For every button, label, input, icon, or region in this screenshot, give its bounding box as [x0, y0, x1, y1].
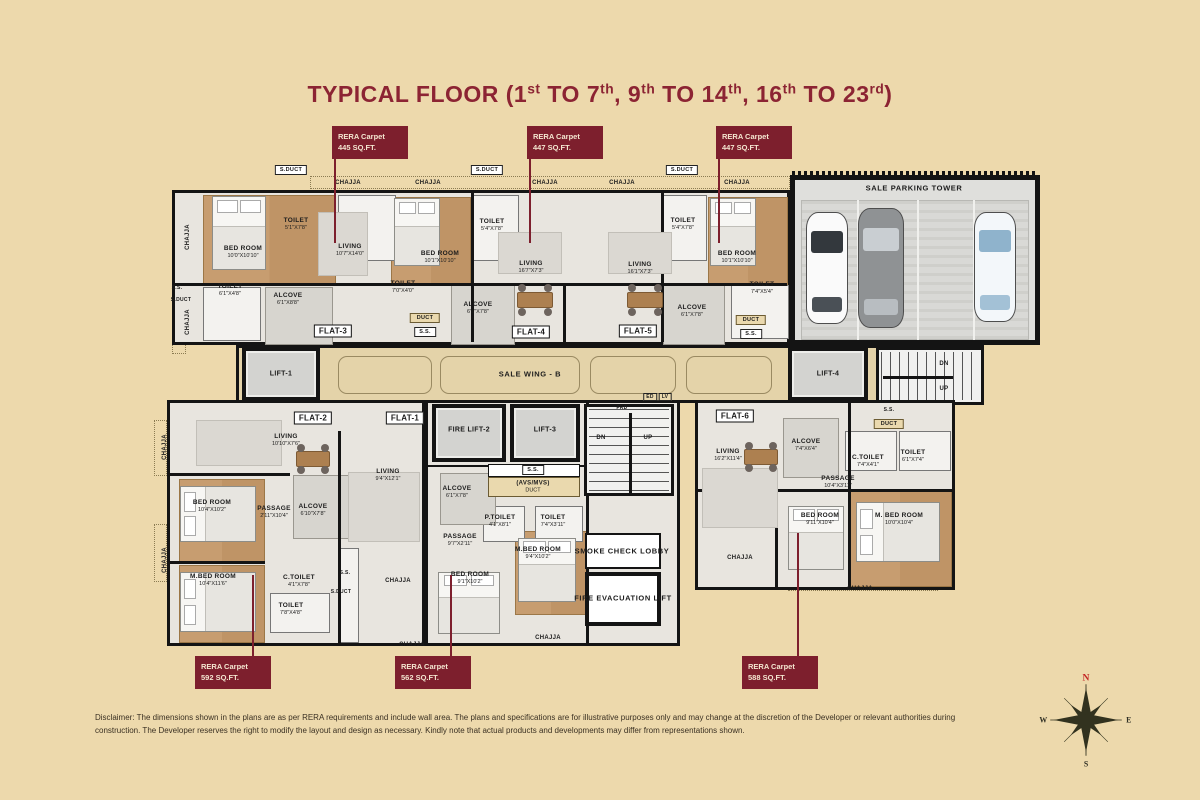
car-blue	[974, 212, 1016, 322]
flat-2-tag: FLAT-2	[294, 412, 332, 425]
rera-carpet-label: RERA Carpet562 SQ.FT.	[395, 656, 471, 689]
frd-label: FRD	[616, 405, 627, 411]
corridor-zone	[590, 356, 676, 394]
living-rug	[196, 420, 282, 466]
bed	[180, 486, 256, 542]
room-label: PASSAGE2'11"X10'4"	[257, 505, 290, 519]
room-label: BED ROOM10'1"X10'10"	[718, 250, 756, 264]
sduct-label: S.DUCT	[275, 165, 307, 175]
chajja-label: CHAJJA	[162, 547, 168, 573]
chajja-label: CHAJJA	[162, 434, 168, 460]
room-label: M.BED ROOM10'4"X11'6"	[190, 573, 236, 587]
room-label: ALCOVE6'1"X7'8"	[464, 301, 493, 315]
room-label: LIVING16'7"X7'3"	[519, 260, 544, 274]
flat-1-tag: FLAT-1	[386, 412, 424, 425]
living-rug	[348, 472, 420, 542]
stairs-dn-label: DN	[939, 361, 948, 367]
room-label: BED ROOM10'0"X10'10"	[224, 245, 262, 259]
chajja-label: CHAJJA	[724, 180, 750, 186]
chajja-label: CHAJJA	[399, 642, 425, 648]
hatch-edge	[792, 171, 1038, 178]
corridor-block	[236, 345, 984, 403]
chajja-label: CHAJJA	[727, 555, 753, 561]
fire-lift-2-label: FIRE LIFT-2	[448, 427, 490, 434]
smoke-lobby-label: SMOKE CHECK LOBBY	[575, 547, 670, 556]
room-label: LIVING16'2"X11'4"	[714, 448, 742, 462]
page-title: TYPICAL FLOOR (1st TO 7th, 9th TO 14th, …	[0, 81, 1200, 108]
compass-west: W	[1039, 716, 1047, 725]
stairs-central	[584, 404, 674, 496]
room-label: LIVING10'10"X7'6"	[272, 433, 300, 447]
compass-east: E	[1126, 716, 1131, 725]
room-label: ALCOVE6'10"X7'8"	[299, 503, 328, 517]
room-label: P.TOILET4'1"X8'1"	[485, 514, 516, 528]
ss-label: S.S.	[414, 327, 436, 337]
room-label: PASSAGE9'7"X2'11"	[443, 533, 476, 547]
sduct-label: S.DUCT	[666, 165, 698, 175]
room-label: TOILET7'8"X4'8"	[279, 602, 304, 616]
sduct-label: S.DUCT	[471, 165, 503, 175]
sduct-label: S.DUCT	[331, 589, 351, 595]
room-label: LIVING9'4"X12'1"	[376, 468, 401, 482]
room-label: TOILET7'4"X5'4"	[750, 281, 775, 295]
car-gray	[858, 208, 904, 328]
parking-tower-label: SALE PARKING TOWER	[866, 184, 963, 193]
ss-label: S.S.	[340, 570, 351, 576]
dining-set	[508, 284, 562, 316]
room-label: BED ROOM9'1"X10'2"	[451, 571, 489, 585]
flat-4-tag: FLAT-4	[512, 326, 550, 339]
dining-set	[618, 284, 672, 316]
duct-shaft	[339, 548, 359, 643]
lv-label: LV	[659, 393, 672, 401]
rera-leader-line	[334, 158, 336, 243]
room-label: TOILET7'4"X3'11"	[541, 514, 566, 528]
corridor-zone	[338, 356, 432, 394]
room-label: C.TOILET4'1"X7'8"	[283, 574, 315, 588]
chajja-label: CHAJJA	[532, 180, 558, 186]
dining-set	[288, 444, 338, 474]
ss-label: S.S.	[884, 407, 895, 413]
room-label: M. BED ROOM10'0"X10'4"	[875, 512, 923, 526]
chajja-label: CHAJJA	[609, 180, 635, 186]
wing-label: SALE WING - B	[499, 370, 561, 379]
room-label: TOILET6'1"X7'4"	[901, 449, 926, 463]
lift-4-label: LIFT-4	[817, 371, 839, 378]
chajja-label: CHAJJA	[185, 224, 191, 250]
rera-leader-line	[252, 575, 254, 656]
rera-carpet-label: RERA Carpet445 SQ.FT.	[332, 126, 408, 159]
room-label: TOILET6'1"X4'8"	[218, 283, 243, 297]
flat-6-tag: FLAT-6	[716, 410, 754, 423]
chajja-label: CHAJJA	[385, 578, 411, 584]
duct-label: DUCT	[410, 313, 440, 323]
rera-leader-line	[797, 533, 799, 656]
fire-evac-lift-label: FIRE EVACUATION LIFT	[574, 594, 672, 603]
room-label: ALCOVE6'1"X7'8"	[443, 485, 472, 499]
room-label: ALCOVE6'1"X7'8"	[678, 304, 707, 318]
ss-label: S.S.	[172, 285, 183, 291]
chajja-label: CHAJJA	[847, 586, 873, 592]
ed-label: ED	[643, 393, 657, 401]
room-label: BED ROOM9'11"X10'4"	[801, 512, 839, 526]
living-rug	[702, 468, 778, 528]
car-white	[806, 212, 848, 324]
flat-5-tag: FLAT-5	[619, 325, 657, 338]
rera-leader-line	[529, 158, 531, 243]
room-label: PASSAGE10'4"X3'11"	[821, 475, 854, 489]
rera-carpet-label: RERA Carpet447 SQ.FT.	[716, 126, 792, 159]
corridor-zone	[686, 356, 772, 394]
room-label: ALCOVE6'1"X8'8"	[274, 292, 303, 306]
duct-label: DUCT	[736, 315, 766, 325]
room-label: M.BED ROOM9'4"X10'2"	[515, 546, 561, 560]
room-label: TOILET5'4"X7'8"	[671, 217, 696, 231]
room-label: TOILET7'0"X4'0"	[391, 280, 416, 294]
ss-label: S.S.	[740, 329, 762, 339]
room-label: BED ROOM10'1"X10'10"	[421, 250, 459, 264]
room-label: TOILET5'4"X7'8"	[480, 218, 505, 232]
dining-set	[736, 442, 786, 472]
stairs-dn-label: DN	[596, 435, 605, 441]
stairs-up-label: UP	[940, 386, 949, 392]
rera-carpet-label: RERA Carpet588 SQ.FT.	[742, 656, 818, 689]
rera-leader-line	[718, 158, 720, 243]
alcove-cell	[451, 285, 515, 345]
lift-3-label: LIFT-3	[534, 427, 556, 434]
chajja-label: CHAJJA	[185, 309, 191, 335]
floor-plan: TYPICAL FLOOR (1st TO 7th, 9th TO 14th, …	[0, 0, 1200, 800]
duct-label: DUCT	[874, 419, 904, 429]
stairs-up-label: UP	[644, 435, 653, 441]
sduct-label: S.DUCT	[171, 297, 191, 303]
room-label: C.TOILET7'4"X4'1"	[852, 454, 884, 468]
room-label: LIVING16'1"X7'3"	[628, 261, 653, 275]
stairs-east	[876, 347, 984, 405]
compass-south: S	[1084, 759, 1089, 768]
disclaimer-text: Disclaimer: The dimensions shown in the …	[95, 712, 1000, 738]
chajja-label: CHAJJA	[415, 180, 441, 186]
bed	[856, 502, 940, 562]
compass-north: N	[1083, 673, 1090, 684]
room-label: ALCOVE7'4"X6'4"	[792, 438, 821, 452]
chajja-label: CHAJJA	[335, 180, 361, 186]
compass-rose: N S W E	[1038, 672, 1134, 768]
room-label: TOILET5'1"X7'8"	[284, 217, 309, 231]
rera-carpet-label: RERA Carpet592 SQ.FT.	[195, 656, 271, 689]
lift-1-label: LIFT-1	[270, 371, 292, 378]
chajja-label: CHAJJA	[535, 635, 561, 641]
room-label: BED ROOM10'4"X10'2"	[193, 499, 231, 513]
avs-mvs-duct-label: (AVS/MVS)DUCT	[516, 481, 549, 494]
rera-carpet-label: RERA Carpet447 SQ.FT.	[527, 126, 603, 159]
ss-label: S.S.	[522, 465, 544, 475]
room-label: LIVING10'7"X14'0"	[336, 243, 364, 257]
flat-3-tag: FLAT-3	[314, 325, 352, 338]
rera-leader-line	[450, 575, 452, 656]
